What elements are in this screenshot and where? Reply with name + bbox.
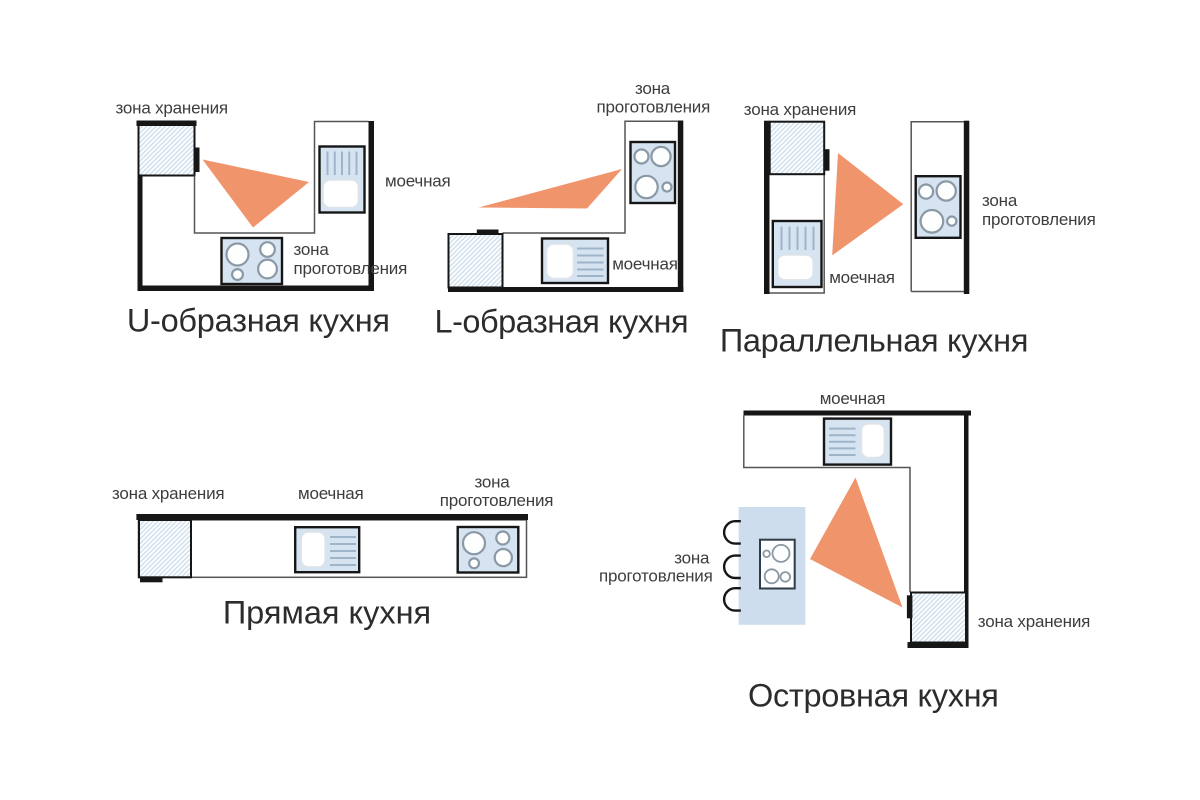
svg-text:проготовления: проготовления (597, 97, 711, 116)
svg-text:зона хранения: зона хранения (744, 100, 856, 119)
svg-text:моечная: моечная (829, 268, 895, 287)
svg-text:Островная кухня: Островная кухня (748, 678, 999, 714)
svg-text:зона хранения: зона хранения (116, 99, 228, 118)
svg-text:проготовления: проготовления (982, 210, 1096, 229)
svg-text:зона: зона (674, 549, 710, 568)
svg-text:L-образная кухня: L-образная кухня (435, 304, 689, 340)
svg-text:Прямая кухня: Прямая кухня (223, 594, 431, 630)
svg-text:зона: зона (635, 79, 671, 98)
svg-text:зона хранения: зона хранения (978, 612, 1090, 631)
svg-text:зона: зона (294, 240, 330, 259)
svg-text:зона хранения: зона хранения (112, 484, 224, 503)
svg-text:моечная: моечная (385, 172, 451, 191)
svg-text:моечная: моечная (820, 389, 886, 408)
svg-text:моечная: моечная (298, 484, 364, 503)
svg-text:проготовления: проготовления (440, 491, 554, 510)
svg-text:Параллельная кухня: Параллельная кухня (720, 323, 1028, 359)
svg-text:зона: зона (474, 473, 510, 492)
svg-text:проготовления: проготовления (294, 259, 408, 278)
svg-text:моечная: моечная (612, 254, 678, 273)
svg-text:U-образная кухня: U-образная кухня (127, 303, 390, 339)
svg-text:проготовления: проготовления (599, 567, 713, 586)
svg-text:зона: зона (982, 191, 1018, 210)
